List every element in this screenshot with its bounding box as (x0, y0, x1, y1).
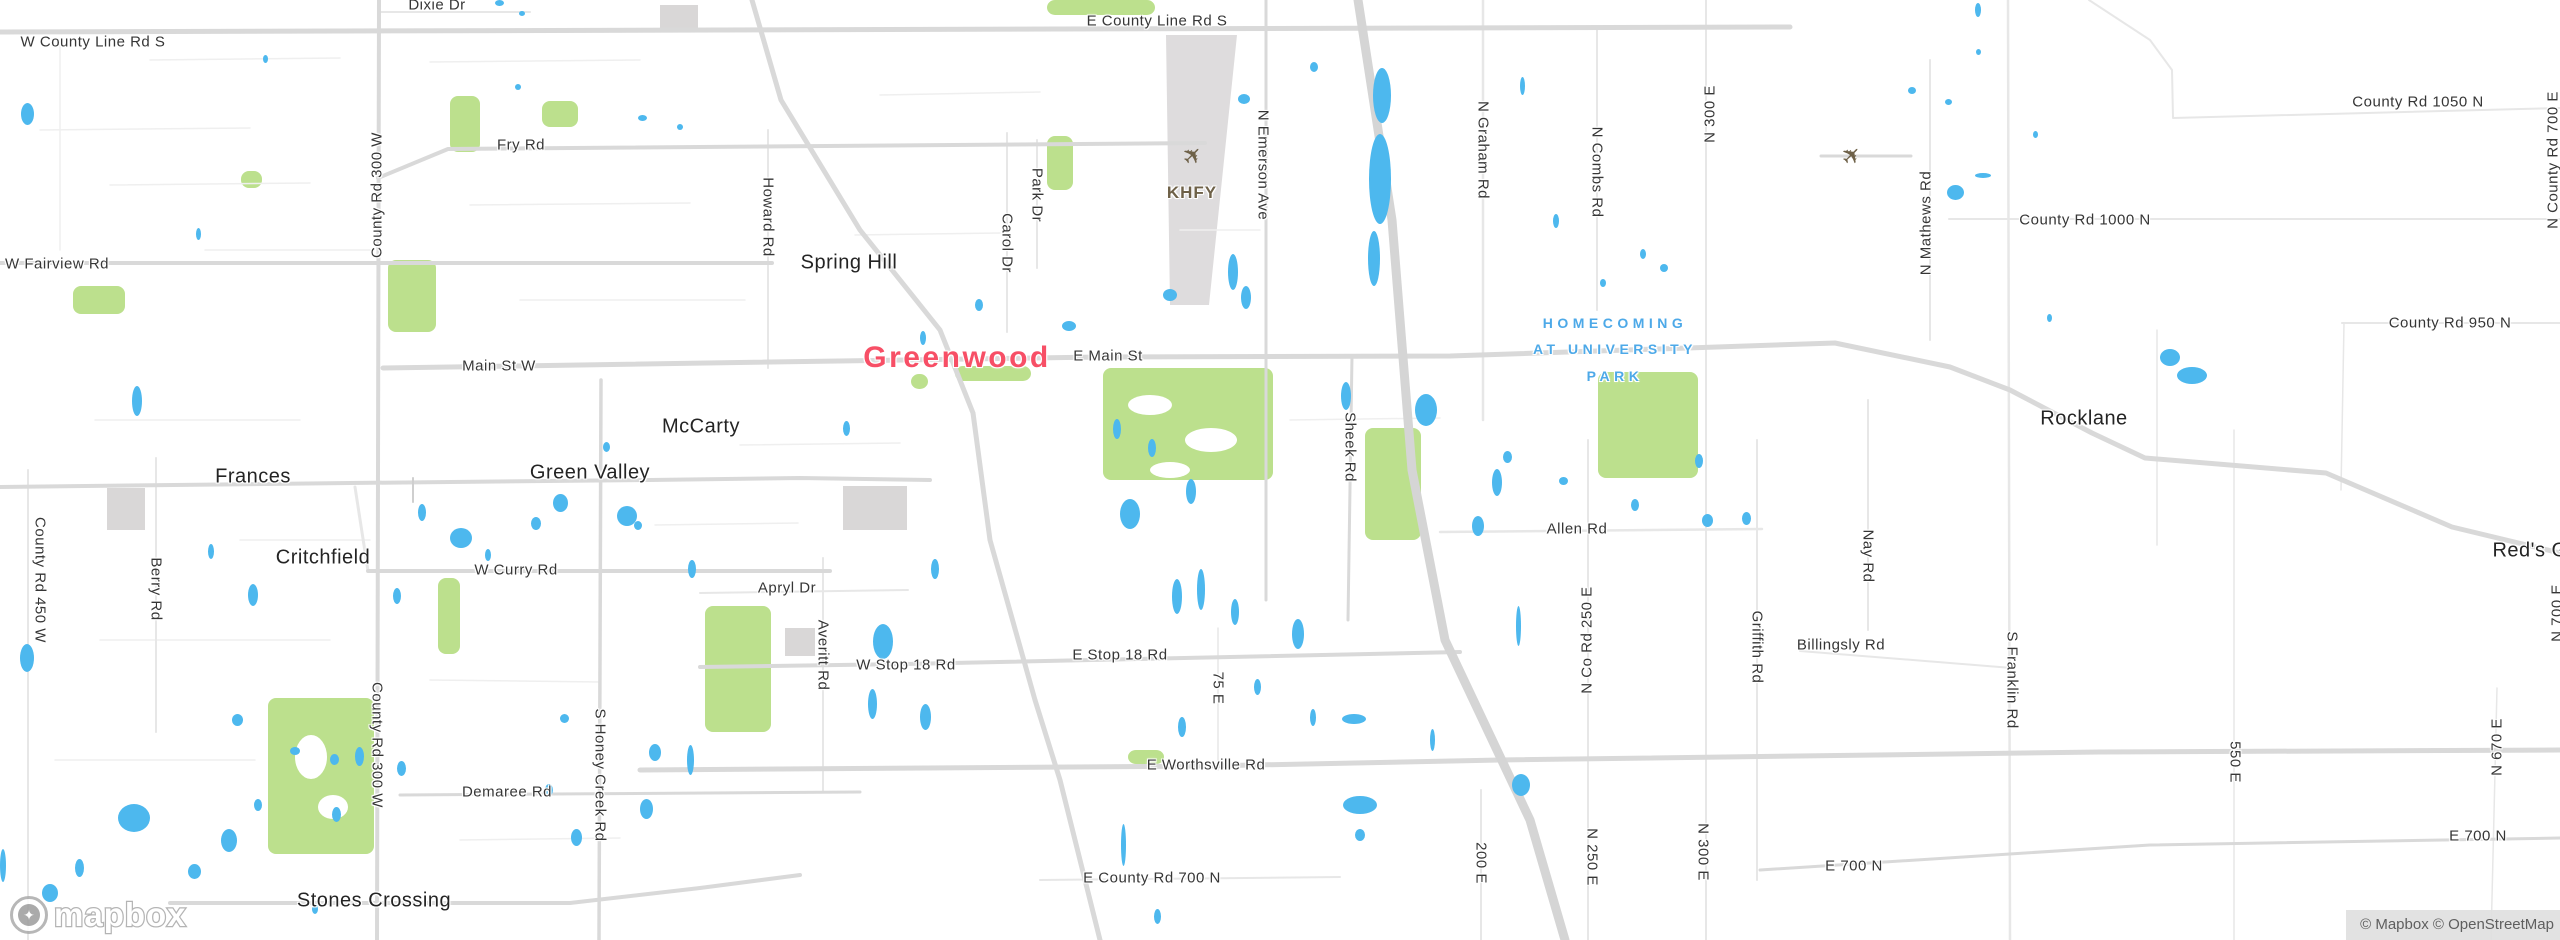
park-clearing (1150, 462, 1190, 478)
pond (1975, 173, 1991, 178)
park-area (955, 366, 1031, 381)
pond (332, 807, 341, 822)
pond (640, 799, 653, 819)
pond (1341, 382, 1351, 410)
pond (290, 747, 300, 755)
pond (196, 228, 201, 240)
pond (553, 494, 568, 512)
pond (931, 559, 939, 579)
pond (1121, 824, 1126, 866)
road-fry-rd (378, 143, 1205, 178)
pond (868, 689, 877, 719)
road-residential (855, 233, 1000, 235)
pond (1947, 185, 1964, 200)
road-billingsly-rd (1800, 651, 2012, 668)
pond (485, 549, 491, 561)
pond (221, 829, 237, 852)
pond (515, 84, 521, 90)
road-franklin-rd (2008, 0, 2010, 940)
pond (1976, 49, 1981, 55)
park-area (450, 96, 480, 152)
road-residential (40, 128, 250, 130)
pond (1373, 68, 1391, 123)
pond (1369, 134, 1391, 224)
pond (1631, 499, 1639, 511)
road-curry-connector (355, 487, 368, 571)
pond (1178, 717, 1186, 737)
pond (1238, 94, 1250, 104)
pond (617, 506, 637, 526)
pond (21, 103, 34, 125)
pond (1148, 439, 1156, 457)
pond (1342, 714, 1366, 724)
pond (1492, 469, 1502, 496)
pond (638, 115, 647, 121)
road-residential (430, 60, 640, 62)
park-area (388, 260, 436, 332)
pond (1559, 477, 1568, 485)
pond (1415, 394, 1437, 426)
pond (1228, 254, 1238, 290)
road-county-rd-300-w (377, 0, 379, 940)
pond (1343, 796, 1377, 814)
map-attribution[interactable]: © Mapbox © OpenStreetMap (2346, 910, 2560, 940)
park-area (438, 578, 460, 654)
pond (873, 624, 893, 659)
pond (1355, 829, 1365, 841)
pond (1197, 569, 1205, 610)
pond (688, 560, 696, 578)
road-allen-rd (1440, 529, 1762, 532)
park-area (911, 374, 928, 389)
park-area (73, 286, 125, 314)
pond (355, 747, 364, 766)
pond (1945, 99, 1952, 105)
pond (1472, 516, 1484, 536)
pond (132, 386, 142, 416)
building (660, 5, 698, 31)
park-area (1103, 368, 1273, 480)
road-n-670-e-rd (2491, 688, 2497, 940)
road-worthsville-rd (640, 750, 2560, 770)
road-residential (460, 838, 620, 840)
pond (975, 299, 983, 311)
park-area (1598, 372, 1698, 478)
pond (188, 864, 201, 879)
road-residential (110, 183, 310, 185)
pond (254, 799, 262, 811)
pond (1742, 512, 1751, 525)
park-area (705, 606, 771, 732)
pond (1154, 909, 1161, 924)
road-demaree-rd (400, 792, 860, 795)
pond (649, 744, 661, 761)
pond (495, 0, 504, 6)
pond (1310, 62, 1318, 72)
park-area (1128, 750, 1164, 764)
road-frances-rd (0, 478, 930, 487)
pond (20, 644, 34, 672)
pond (1640, 249, 1646, 259)
park-area (542, 101, 578, 127)
pond (920, 331, 926, 345)
pond (1702, 514, 1713, 527)
pond (571, 829, 582, 846)
pond (312, 904, 318, 914)
pond (1292, 619, 1304, 649)
airport-runway (1166, 35, 1237, 305)
road-e-700-n-rd (1760, 838, 2560, 870)
pond (1520, 77, 1525, 95)
pond (1163, 289, 1177, 301)
pond (1368, 231, 1380, 286)
pond (1254, 679, 1261, 695)
road-honey-creek-rd (599, 380, 601, 940)
mapbox-logo[interactable]: ✦ mapbox (10, 896, 187, 934)
pond (531, 517, 541, 530)
pond (1516, 606, 1521, 646)
park-area (1047, 0, 1155, 15)
pond (232, 714, 243, 726)
road-residential (150, 58, 340, 60)
pond (843, 421, 850, 436)
pond (1660, 264, 1668, 272)
pond (1113, 419, 1121, 439)
road-residential (740, 443, 900, 445)
pond (1310, 709, 1316, 726)
park-area (241, 171, 262, 188)
map-canvas[interactable]: W County Line Rd SDixie DrE County Line … (0, 0, 2560, 940)
park-clearing (1128, 395, 1172, 415)
road-residential (430, 680, 600, 682)
park-clearing (1185, 428, 1237, 452)
pond (634, 521, 642, 530)
pond (2177, 367, 2207, 384)
road-county-rd-1050-n (2089, 0, 2560, 118)
building (107, 488, 145, 530)
pond (0, 849, 6, 882)
pond (208, 544, 214, 559)
pond (603, 442, 610, 452)
pond (1241, 286, 1251, 309)
road-residential (880, 92, 1040, 95)
road-apryl-dr (700, 590, 908, 593)
park-area (268, 698, 374, 854)
pond (519, 11, 525, 16)
road-county-line-rd (0, 27, 1790, 32)
pond (1600, 279, 1606, 287)
pond (75, 859, 84, 877)
pond (1062, 321, 1076, 331)
pond (1553, 214, 1559, 228)
pond (560, 714, 569, 723)
building (843, 486, 907, 530)
road-stones-crossing-rd (170, 875, 800, 903)
pond (1503, 451, 1512, 463)
pond (1120, 499, 1140, 529)
pond (545, 784, 553, 796)
pond (1430, 729, 1435, 751)
pond (2160, 349, 2180, 366)
pond (393, 588, 401, 604)
pond (397, 761, 406, 776)
road-residential (470, 203, 690, 205)
pond (118, 804, 150, 832)
pond (2047, 314, 2052, 322)
pond (920, 704, 931, 730)
building (785, 628, 815, 656)
road-cr-950-connector (2341, 323, 2344, 490)
pond (2033, 131, 2038, 138)
pond (1975, 3, 1981, 17)
road-residential (655, 523, 798, 525)
pond (1512, 774, 1530, 796)
park-clearing (295, 735, 327, 779)
map-geometry (0, 0, 2560, 940)
pond (1231, 599, 1239, 625)
pond (1695, 454, 1703, 468)
mapbox-pin-icon: ✦ (10, 896, 48, 934)
pond (687, 745, 694, 775)
pond (330, 754, 339, 765)
mapbox-wordmark: mapbox (54, 896, 187, 934)
pond (1908, 87, 1916, 94)
pond (1172, 579, 1182, 614)
pond (1186, 479, 1196, 504)
pond (263, 55, 268, 63)
pond (677, 124, 683, 130)
pond (248, 584, 258, 606)
pond (418, 504, 426, 521)
pond (450, 528, 472, 548)
